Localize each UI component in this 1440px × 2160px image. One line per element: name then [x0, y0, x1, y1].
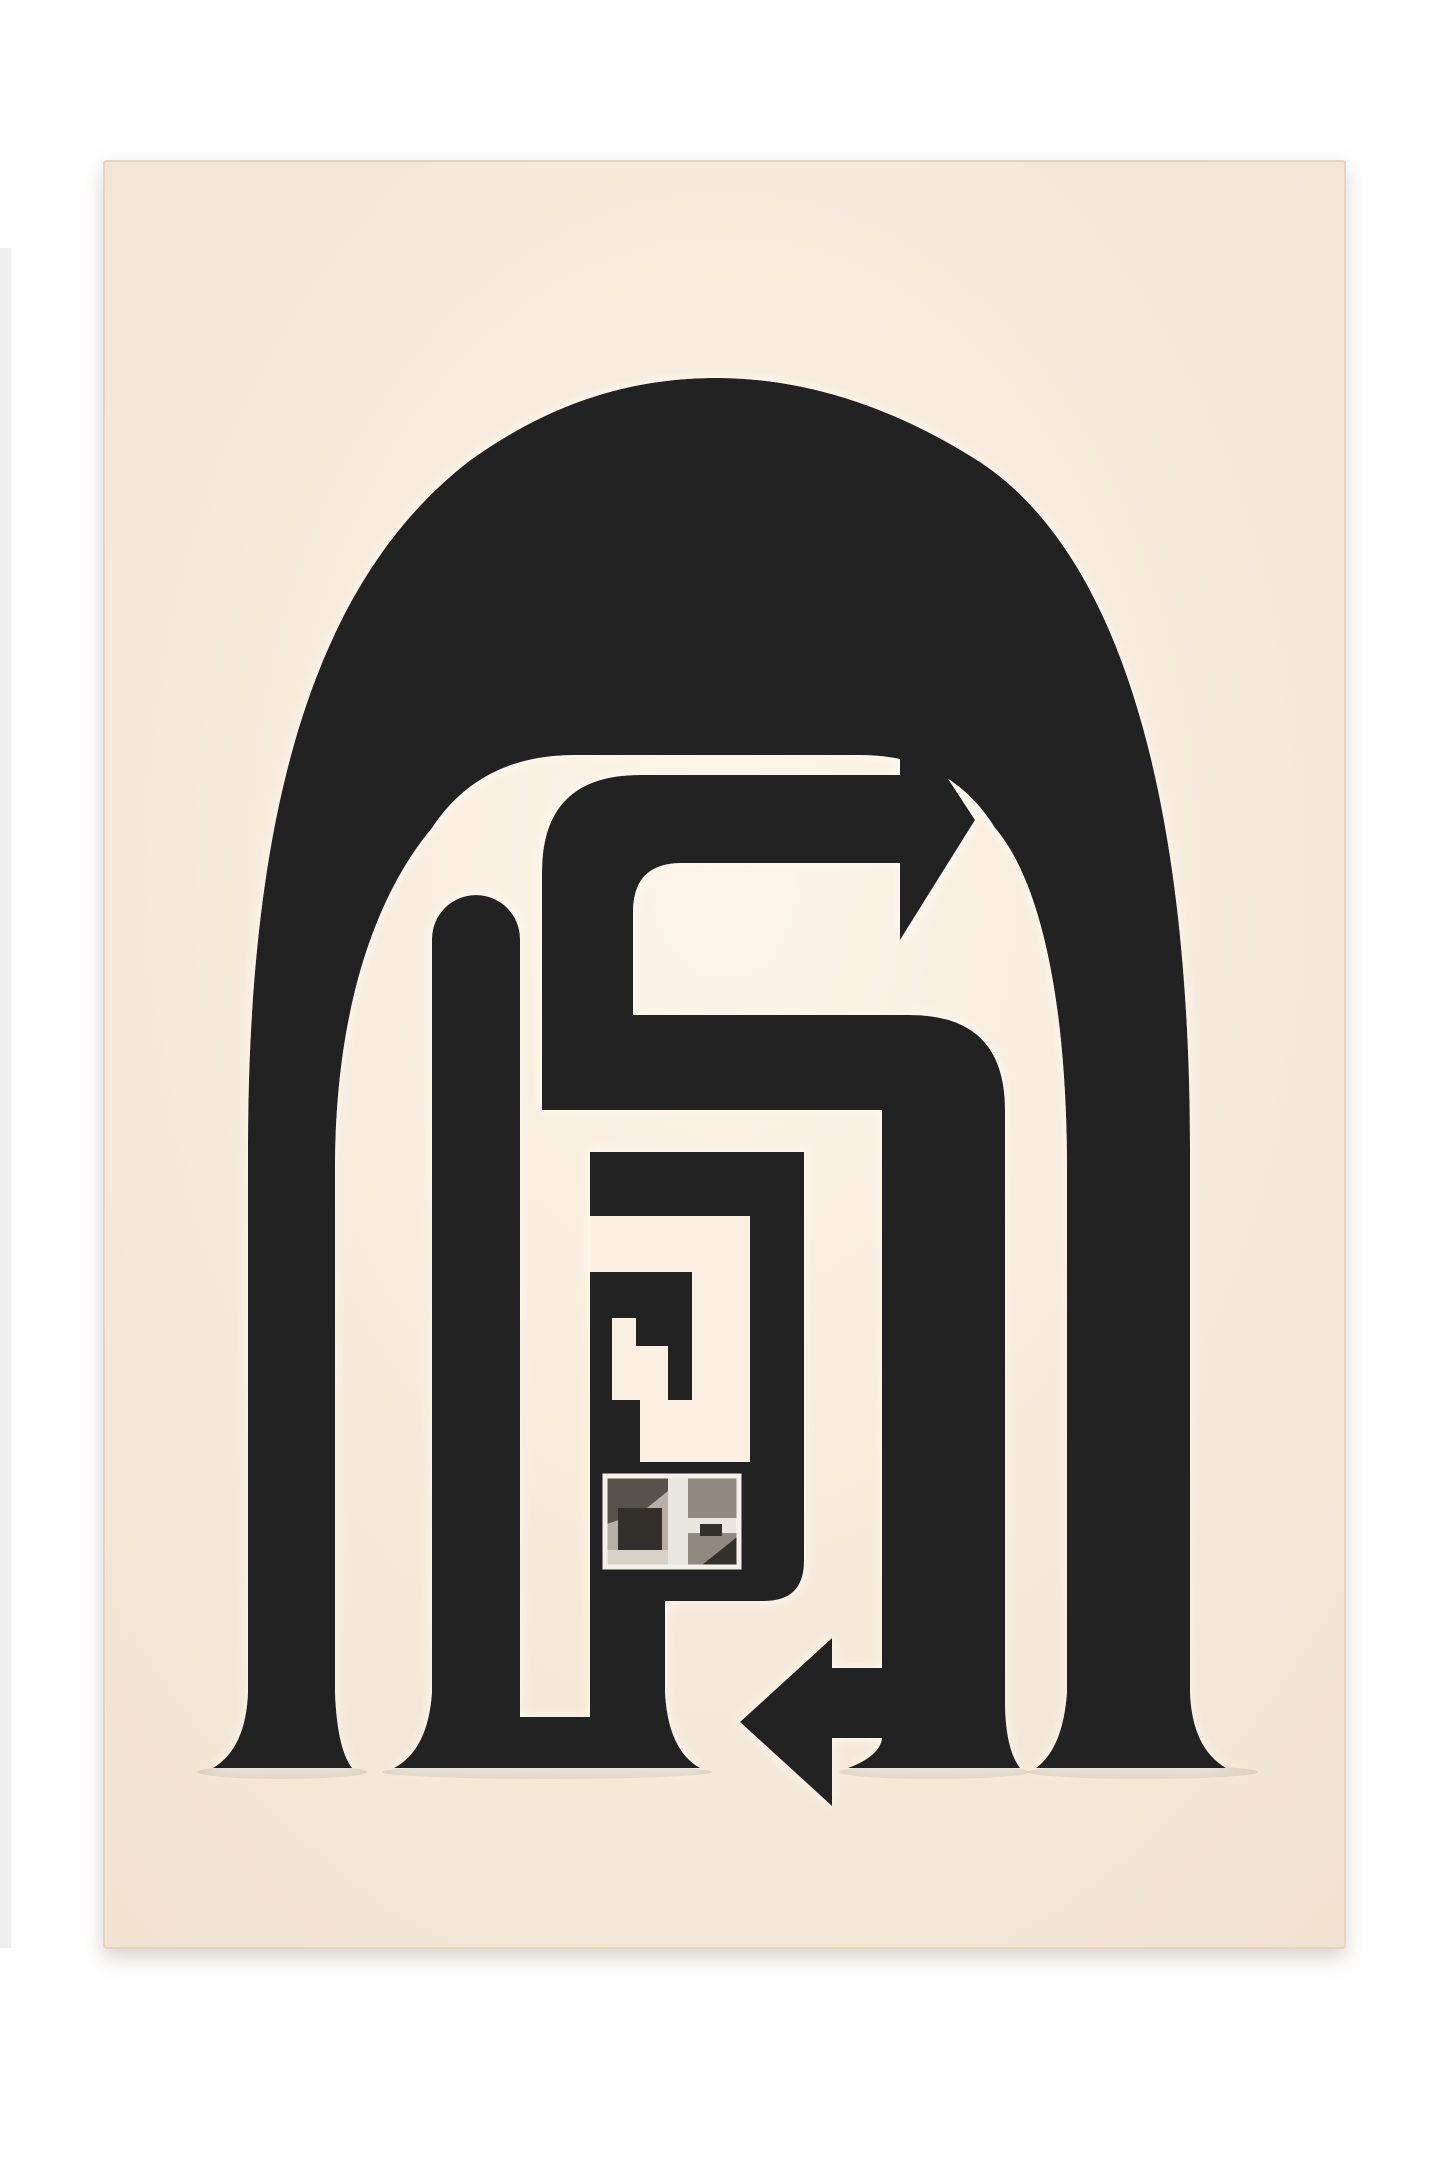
- screenshot-root: [0, 0, 1440, 2160]
- background-strip: [0, 248, 11, 1948]
- photo-floor: [607, 1550, 668, 1565]
- spiral-eye-tick: [636, 1318, 668, 1346]
- art-print-photo: [0, 0, 1440, 2160]
- photo-pillar: [668, 1478, 688, 1565]
- photo-collage-chip: [605, 1476, 739, 1567]
- photo-doorway: [618, 1508, 662, 1550]
